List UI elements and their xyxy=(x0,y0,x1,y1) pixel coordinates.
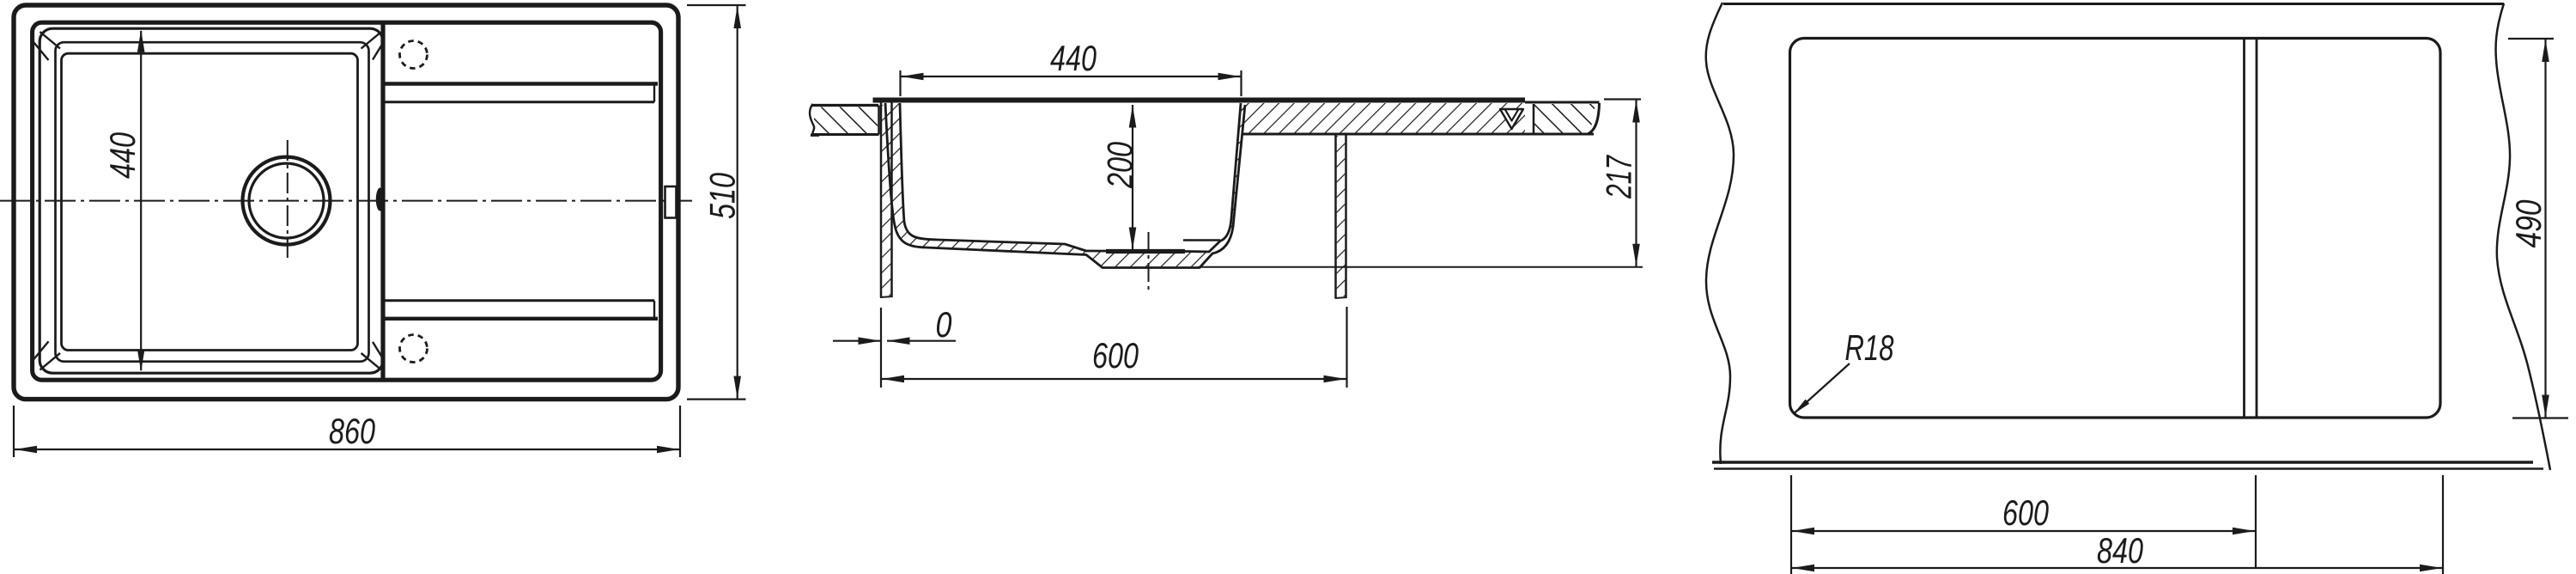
svg-text:490: 490 xyxy=(2508,199,2549,248)
svg-text:217: 217 xyxy=(1599,155,1639,199)
svg-text:440: 440 xyxy=(102,132,143,179)
svg-text:R18: R18 xyxy=(1845,327,1894,368)
svg-text:840: 840 xyxy=(2097,530,2143,571)
svg-text:600: 600 xyxy=(1092,335,1139,376)
svg-text:200: 200 xyxy=(1100,142,1140,189)
svg-text:860: 860 xyxy=(329,411,375,451)
svg-text:440: 440 xyxy=(1050,38,1097,78)
svg-text:0: 0 xyxy=(936,304,953,345)
svg-text:600: 600 xyxy=(2002,492,2049,533)
svg-text:510: 510 xyxy=(702,173,743,219)
